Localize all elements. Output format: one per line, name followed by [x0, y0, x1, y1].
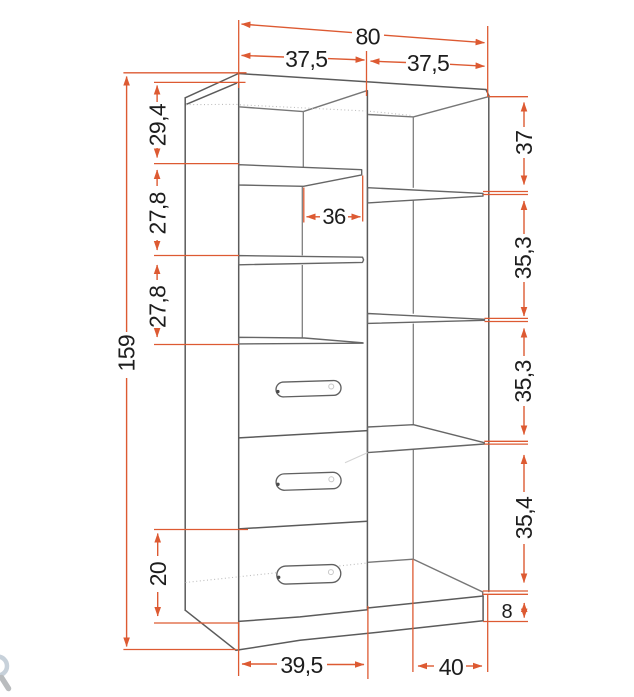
- svg-text:8: 8: [502, 601, 513, 623]
- svg-text:27,8: 27,8: [145, 192, 171, 234]
- svg-text:36: 36: [322, 204, 346, 229]
- svg-text:80: 80: [356, 24, 380, 50]
- svg-text:37: 37: [511, 131, 537, 155]
- svg-text:37,5: 37,5: [407, 50, 449, 76]
- svg-text:35,4: 35,4: [511, 496, 537, 539]
- svg-text:20: 20: [145, 562, 171, 586]
- svg-text:35,3: 35,3: [510, 360, 536, 402]
- svg-text:35,3: 35,3: [510, 237, 536, 279]
- svg-text:29,4: 29,4: [145, 103, 171, 146]
- svg-text:40: 40: [439, 654, 463, 680]
- svg-text:37,5: 37,5: [285, 46, 327, 72]
- svg-text:159: 159: [114, 335, 140, 372]
- svg-text:27,8: 27,8: [145, 286, 171, 328]
- svg-text:39,5: 39,5: [280, 652, 322, 678]
